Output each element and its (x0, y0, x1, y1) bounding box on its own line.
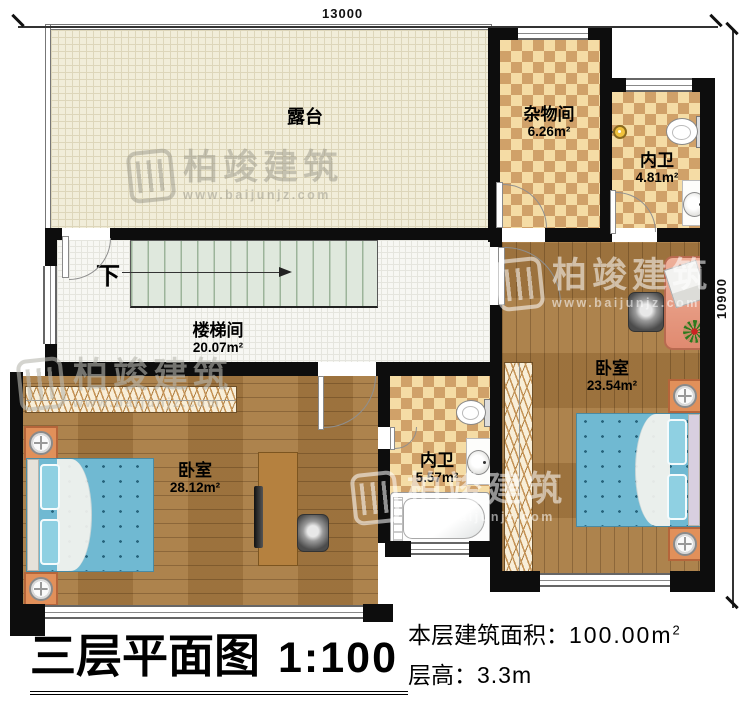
drawing-title: 三层平面图1:100 (30, 620, 408, 695)
bathtub-icon (390, 492, 490, 544)
stairs (130, 240, 378, 308)
wall (545, 228, 612, 242)
lamp-icon (29, 577, 53, 601)
pillow (667, 419, 687, 465)
wardrobe-left-bedroom (25, 386, 237, 413)
desk-left-bedroom (258, 452, 298, 566)
room-label-bedroom-left: 卧室28.12m² (170, 462, 220, 496)
monitor-icon (254, 486, 263, 548)
wall (490, 228, 502, 247)
toilet-icon (456, 400, 486, 425)
wall (45, 228, 57, 268)
wall (378, 376, 390, 427)
wall (700, 78, 715, 592)
bed-headboard (27, 459, 39, 571)
room-label-stairwell: 楼梯间20.07m² (193, 322, 244, 356)
dimension-line-top (18, 26, 718, 28)
desk-chair (628, 292, 664, 332)
floor-area-info: 本层建筑面积：100.00m2 (408, 616, 680, 650)
room-label-terrace: 露台 (287, 108, 323, 128)
terrace-parapet-left (45, 24, 51, 230)
wall (490, 376, 502, 573)
wardrobe-right-bedroom (504, 362, 533, 573)
bed-left-bedroom (26, 458, 154, 572)
wall (490, 571, 540, 592)
terrace-floor (51, 30, 488, 228)
room-label-bedroom-right: 卧室23.54m² (587, 360, 637, 394)
blanket-fold (635, 414, 670, 526)
bed-right-bedroom (576, 413, 701, 527)
wall (378, 449, 390, 543)
door-swing-arc (505, 247, 561, 303)
wall (490, 305, 502, 376)
wall (10, 372, 23, 624)
stair-direction-arrow (122, 272, 280, 273)
dimension-line-right (732, 30, 734, 608)
wall (670, 571, 715, 592)
title-scale: 1:100 (278, 634, 398, 682)
wall (657, 228, 715, 242)
window (540, 573, 670, 587)
wall (376, 362, 502, 376)
door-swing-arc (616, 192, 656, 232)
window (518, 26, 588, 40)
floor-height-value: 3.3m (477, 662, 532, 688)
dimension-top-value: 13000 (322, 6, 363, 21)
wall (45, 362, 318, 376)
window (45, 605, 363, 619)
nightstand (24, 426, 58, 460)
door-leaf (498, 247, 505, 305)
window (411, 542, 469, 555)
pillow (40, 519, 60, 565)
wall-lamp-icon (613, 125, 627, 139)
lamp-icon (29, 431, 53, 455)
area-value: 100.00m (569, 622, 673, 648)
wall (385, 541, 411, 557)
window (626, 78, 692, 92)
toilet-icon (666, 118, 698, 145)
dimension-right-value: 10900 (714, 278, 729, 319)
lamp-icon (673, 532, 697, 556)
floor-height-info: 层高：3.3m (408, 656, 532, 690)
window (43, 266, 57, 344)
door-leaf (62, 236, 69, 278)
door-leaf (496, 182, 503, 228)
desk-chair (297, 514, 329, 552)
nightstand (24, 572, 58, 606)
sink-icon (467, 450, 490, 475)
nightstand (668, 379, 702, 413)
nightstand (668, 527, 702, 561)
room-label-storage: 杂物间6.26m² (524, 106, 575, 140)
door-swing-arc (503, 184, 547, 228)
door-swing-arc (69, 238, 111, 280)
area-label: 本层建筑面积： (408, 622, 569, 648)
blanket-fold (57, 459, 92, 571)
bed-headboard (688, 414, 700, 526)
door-swing-arc (395, 427, 417, 449)
lamp-icon (673, 384, 697, 408)
floor-height-label: 层高： (408, 662, 477, 688)
area-exponent: 2 (673, 622, 680, 637)
pillow (667, 474, 687, 520)
room-label-bath-mid: 内卫5.57m² (416, 452, 459, 486)
pillow (40, 464, 60, 510)
title-text: 三层平面图 (30, 630, 260, 682)
door-swing-arc (324, 376, 376, 428)
floor-plan-canvas: 下 (0, 0, 750, 705)
wall (110, 228, 488, 240)
room-label-bath-top: 内卫4.81m² (636, 152, 679, 186)
